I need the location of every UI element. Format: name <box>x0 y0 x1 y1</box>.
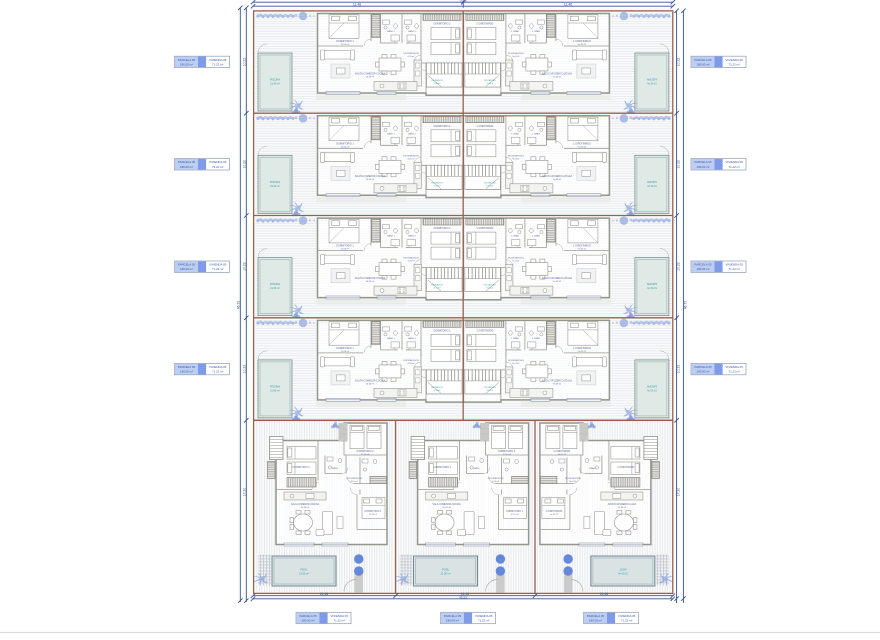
svg-text:45.93: 45.93 <box>459 595 467 599</box>
svg-text:10.22: 10.22 <box>242 58 246 67</box>
svg-text:17.30: 17.30 <box>677 488 681 497</box>
svg-text:10.22: 10.22 <box>677 365 681 374</box>
svg-text:10.22: 10.22 <box>242 262 246 271</box>
svg-text:10.22: 10.22 <box>242 365 246 374</box>
svg-text:10.22: 10.22 <box>677 262 681 271</box>
svg-text:17.30: 17.30 <box>242 488 246 497</box>
svg-text:46.72: 46.72 <box>236 301 240 310</box>
svg-text:11.46: 11.46 <box>564 2 572 6</box>
svg-text:10.22: 10.22 <box>242 160 246 169</box>
svg-text:10.22: 10.22 <box>677 58 681 67</box>
svg-text:11.46: 11.46 <box>353 2 361 6</box>
svg-text:46.72: 46.72 <box>683 301 687 310</box>
svg-text:11.46: 11.46 <box>600 592 608 596</box>
svg-text:10.22: 10.22 <box>677 160 681 169</box>
svg-text:22.93: 22.93 <box>459 0 467 4</box>
svg-text:11.46: 11.46 <box>320 592 328 596</box>
